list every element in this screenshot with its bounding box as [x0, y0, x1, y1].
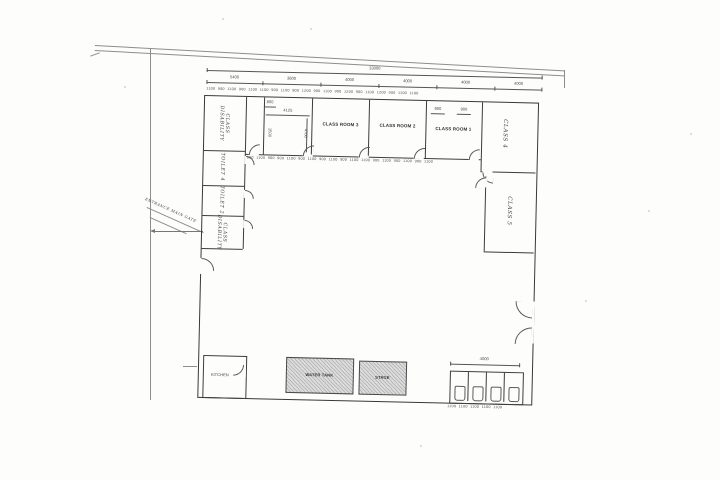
room-dim-value: 800 [265, 100, 276, 104]
toilet-fixture-icon [472, 386, 483, 401]
dimension-tick [541, 88, 542, 92]
scan-speck [222, 18, 224, 20]
dimension-tick [207, 68, 208, 72]
room-label-class-disability-bottom: CLASS DISABILITY [216, 212, 228, 252]
overall-dimension-value: 33000 [365, 67, 385, 72]
room-dim-value: 1500 [267, 126, 271, 140]
room-label-toilet4: TOILET 4 [219, 149, 225, 184]
scan-speck [585, 300, 587, 302]
dimension-tick [494, 87, 495, 91]
scan-speck [648, 210, 650, 212]
scan-speck [420, 445, 422, 447]
toilet-fixture-icon [454, 386, 465, 401]
boundary-dash-top-left [90, 52, 100, 56]
room-dim-value: 4125 [280, 109, 296, 113]
toilet-fixture-icon [508, 387, 519, 402]
segment-dimension-value: 3600 [281, 77, 301, 82]
room-label-classroom2: CLASS ROOM 2 [377, 124, 418, 129]
dimension-tick [542, 76, 543, 80]
segment-dimension-value: 5400 [224, 75, 244, 80]
building-floor-plan: 33000 5400 3600 4000 4000 4000 4000 1100… [197, 58, 550, 431]
room-label-classroom1: CLASS ROOM 1 [434, 127, 473, 132]
toilet-fixture-icon [490, 387, 501, 402]
segment-dimension-value: 4000 [397, 79, 417, 84]
entrance-arrow-line [155, 231, 203, 232]
small-dimension-row-toilet: 1100 1100 1100 1100 1100 [447, 405, 525, 410]
dimension-tick [519, 363, 520, 367]
overall-dimension-line [207, 70, 543, 79]
dimension-tick [206, 80, 207, 84]
segment-dimension-value: 4000 [339, 78, 359, 83]
dimension-tick [436, 85, 437, 89]
scan-speck [124, 86, 126, 88]
classroom1-dim: 900 [432, 107, 443, 111]
classroom1-dim: 900 [458, 108, 469, 112]
room-label-classroom3: CLASS ROOM 3 [320, 122, 361, 127]
site-boundary-line-left [150, 48, 151, 400]
dimension-tick [320, 83, 321, 87]
toilet-block-dim-value: 4000 [476, 357, 492, 361]
dimension-tick [262, 81, 263, 85]
scanned-floor-plan-sheet: ENTRANCE MAIN GATE 33000 5400 3600 4000 … [0, 0, 720, 480]
water-tank-label: WATER TANK [306, 373, 334, 378]
site-boundary-corner-line [564, 70, 565, 88]
segment-dimension-value: 4000 [508, 82, 528, 87]
scan-speck [690, 133, 692, 135]
room-label-kitchen: KITCHEN [210, 373, 229, 378]
room-dim-value: 4700 [303, 126, 307, 140]
room-label-class5: CLASS 5 [506, 192, 513, 229]
segment-dimension-value: 4000 [455, 81, 475, 86]
boundary-tick-bottom-left [183, 366, 197, 367]
dimension-tick [450, 362, 451, 366]
room-label-class4: CLASS 4 [502, 115, 509, 152]
room-label-class-disability-top: CLASS DISABILITY [218, 103, 230, 143]
water-tank-block: WATER TANK [285, 357, 354, 395]
scan-speck [310, 28, 312, 30]
stage-label: STAGE [376, 376, 391, 380]
entrance-arrowhead-icon [150, 229, 155, 233]
dimension-tick [378, 84, 379, 88]
stage-block: STAGE [358, 361, 407, 396]
